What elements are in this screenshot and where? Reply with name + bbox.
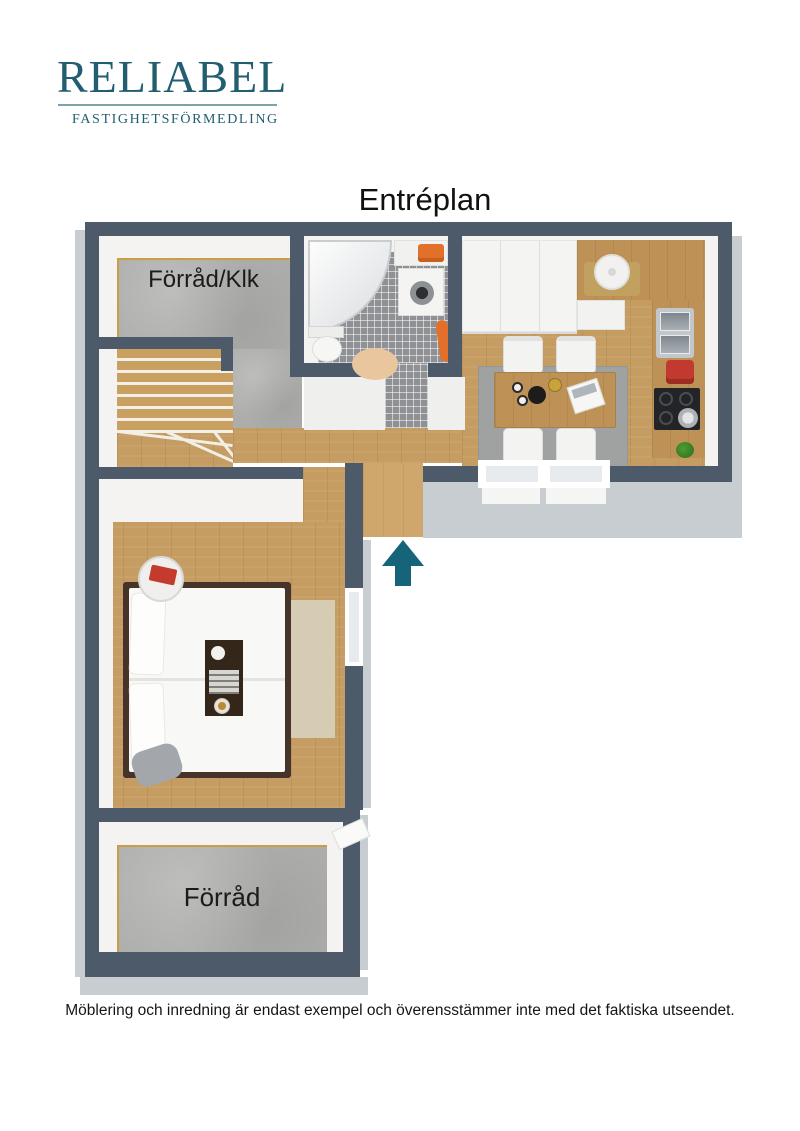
page: RELIABEL FASTIGHETSFÖRMEDLING Entréplan xyxy=(0,0,800,1131)
forrad-south-wall-face xyxy=(80,977,368,995)
kitchen-sink xyxy=(656,308,694,358)
cup xyxy=(517,395,528,406)
white-pot xyxy=(594,254,630,290)
room-label-forrad: Förråd xyxy=(117,882,327,913)
stair-west-wall-face xyxy=(99,349,117,467)
cup xyxy=(512,382,523,393)
entrance-opening xyxy=(363,463,423,537)
bathroom-south-wall-face2 xyxy=(428,377,465,430)
stair-step xyxy=(117,373,233,385)
bedroom-north-wall-face xyxy=(99,479,303,522)
red-appliance xyxy=(666,360,694,384)
disclaimer-text: Möblering och inredning är endast exempe… xyxy=(0,1002,800,1020)
bedroom-doorway-floor xyxy=(303,467,345,522)
wall-forrad-south xyxy=(85,952,360,977)
bedroom-window xyxy=(345,588,363,666)
pot-on-stove xyxy=(678,408,698,428)
bed-tray-teapot xyxy=(211,646,225,660)
wall-bathroom-west xyxy=(290,236,304,377)
hall-floor xyxy=(233,428,462,463)
stove xyxy=(654,388,700,430)
pillow xyxy=(129,592,167,675)
plant xyxy=(676,442,694,458)
stair-step xyxy=(117,385,233,397)
teapot xyxy=(528,386,546,404)
wall-stub xyxy=(221,337,233,371)
entrance-arrow-icon xyxy=(382,540,424,586)
stair-winders xyxy=(117,430,233,467)
wall-north xyxy=(85,222,732,236)
wall-west xyxy=(85,236,99,977)
kitchen-window xyxy=(478,460,610,488)
dining-chair xyxy=(503,336,543,374)
orange-towels xyxy=(418,244,444,262)
tall-cabinets xyxy=(462,240,577,332)
floorplan: Förråd/Klk Förråd xyxy=(0,0,800,1131)
wall-bathroom-east xyxy=(448,236,462,377)
room-label-forrad-klk: Förråd/Klk xyxy=(117,266,290,294)
window-sill xyxy=(482,488,540,504)
wall-bedroom-north xyxy=(99,467,303,479)
bath-mat xyxy=(352,348,398,380)
wall-bedroom-south xyxy=(85,808,360,822)
window-sill xyxy=(546,488,606,504)
plate xyxy=(214,698,230,714)
dining-chair xyxy=(556,336,596,374)
stair-step xyxy=(117,361,233,373)
lower-cabinet xyxy=(577,300,625,330)
wall-klk-stairs xyxy=(99,337,233,349)
bowl xyxy=(548,378,562,392)
stair-step xyxy=(117,409,233,421)
bathroom-south-wall-face xyxy=(304,377,385,430)
bedroom-west-wall-face xyxy=(99,522,113,808)
bedroom-east-wall-face xyxy=(363,540,371,808)
kitchen-east-wall-face xyxy=(705,236,718,468)
magazine xyxy=(209,670,239,694)
stair-step xyxy=(117,397,233,409)
stair-step xyxy=(117,349,233,361)
outer-wall-face-west xyxy=(75,230,85,977)
washing-machine xyxy=(398,268,444,316)
toilet xyxy=(312,336,342,362)
